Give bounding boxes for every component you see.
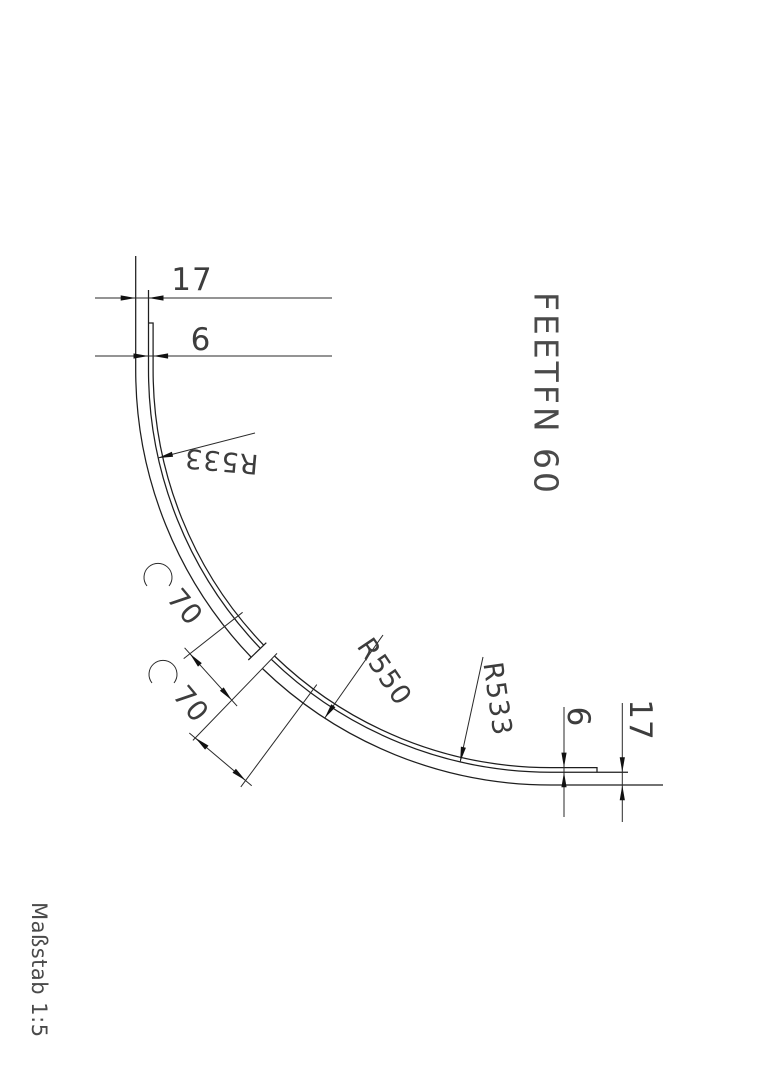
outer-edge-lower-segment [262, 669, 663, 786]
arrow-leader-r533-bottom [460, 747, 466, 762]
arc-length-symbol-1 [144, 563, 172, 586]
arrow-arc70-1-end [220, 687, 232, 700]
arrow-right6-top [561, 753, 566, 768]
arc-length-symbol-2 [149, 660, 177, 683]
arrow-top6-right [153, 353, 168, 358]
drawing-title: FEETFN 60 [527, 292, 566, 496]
arrow-arc70-2-end [233, 769, 246, 781]
arrow-right17-bottom [620, 785, 625, 800]
arrow-right17-top [620, 757, 625, 772]
labels: 17 6 70 70 R533 R550 R533 6 17 FEETFN 60… [27, 262, 658, 1038]
scale-note: Maßstab 1:5 [27, 902, 51, 1038]
drawing-sheet: 17 6 70 70 R533 R550 R533 6 17 FEETFN 60… [0, 0, 763, 1080]
arrow-arc70-2-start [195, 738, 208, 750]
dim-17-right-label: 17 [622, 699, 658, 740]
radius-r533-top-label: R533 [183, 442, 260, 479]
technical-drawing-canvas: 17 6 70 70 R533 R550 R533 6 17 FEETFN 60… [0, 0, 763, 1080]
arrow-right6-bottom [561, 772, 566, 787]
liner-strip-upper-segment [149, 323, 264, 645]
station-line-3 [241, 685, 317, 787]
radius-r533-bottom-label: R533 [476, 660, 517, 738]
arrow-leader-r533-top [158, 452, 173, 458]
arrow-top6-left [134, 353, 149, 358]
dim-70-2-label: 70 [166, 679, 215, 729]
arrow-top17-left [121, 295, 136, 300]
radius-r550-label: R550 [350, 633, 417, 712]
dim-6-top-label: 6 [191, 322, 212, 358]
arrow-arc70-1-start [190, 654, 202, 667]
dim-17-top-label: 17 [171, 262, 212, 298]
liner-strip-lower-segment [275, 656, 598, 772]
dim-6-right-label: 6 [560, 707, 596, 728]
dim-70-1-label: 70 [160, 582, 209, 632]
arrow-top17-right [149, 295, 164, 300]
